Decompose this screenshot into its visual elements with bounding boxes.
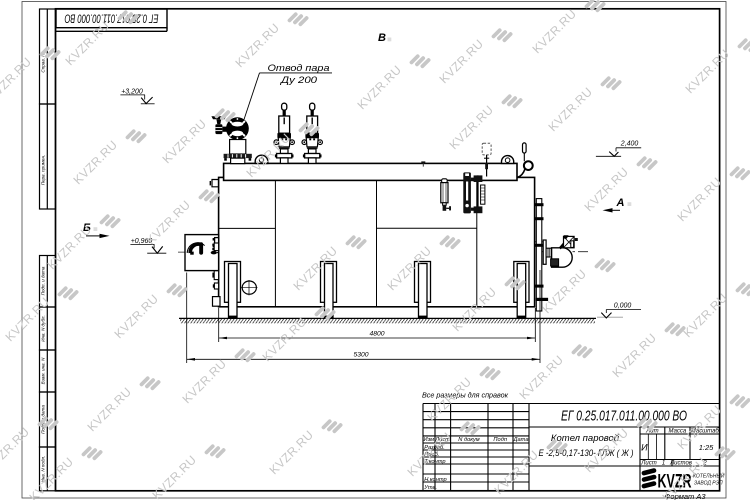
- svg-text:Лист: Лист: [640, 460, 656, 466]
- svg-text:1:25: 1:25: [699, 443, 714, 452]
- svg-text:Инв. N дубл.: Инв. N дубл.: [41, 315, 46, 342]
- svg-text:4800: 4800: [369, 330, 384, 337]
- svg-text:В: В: [378, 32, 386, 44]
- svg-text:5300: 5300: [353, 352, 368, 359]
- svg-text:Перв. примен.: Перв. примен.: [41, 155, 46, 186]
- svg-text:1: 1: [662, 460, 665, 466]
- svg-text:Отвод пара: Отвод пара: [268, 63, 330, 74]
- svg-text:Взам. инв. N: Взам. инв. N: [41, 357, 46, 384]
- svg-text:Подп: Подп: [493, 437, 507, 443]
- svg-text:N докум: N докум: [458, 437, 480, 443]
- svg-text:2,400: 2,400: [620, 141, 639, 148]
- svg-text:Подп. и дата: Подп. и дата: [41, 266, 46, 295]
- svg-text:ЗАВОД РЭП: ЗАВОД РЭП: [694, 481, 723, 487]
- svg-text:А: А: [616, 197, 625, 209]
- svg-text:Дата: Дата: [512, 437, 528, 443]
- svg-text:ЕГ 0.25.017.011.00.000 ВО: ЕГ 0.25.017.011.00.000 ВО: [65, 12, 159, 26]
- svg-text:И: И: [641, 443, 648, 453]
- svg-text:Утв.: Утв.: [423, 485, 437, 491]
- svg-text:Н.контр: Н.контр: [424, 477, 447, 483]
- svg-text:Ду 200: Ду 200: [280, 75, 318, 86]
- svg-text:+3,200: +3,200: [121, 88, 143, 95]
- svg-text:ЕГ 0.25.017.011.00.000 ВО: ЕГ 0.25.017.011.00.000 ВО: [561, 407, 687, 424]
- svg-text:0,000: 0,000: [614, 303, 632, 310]
